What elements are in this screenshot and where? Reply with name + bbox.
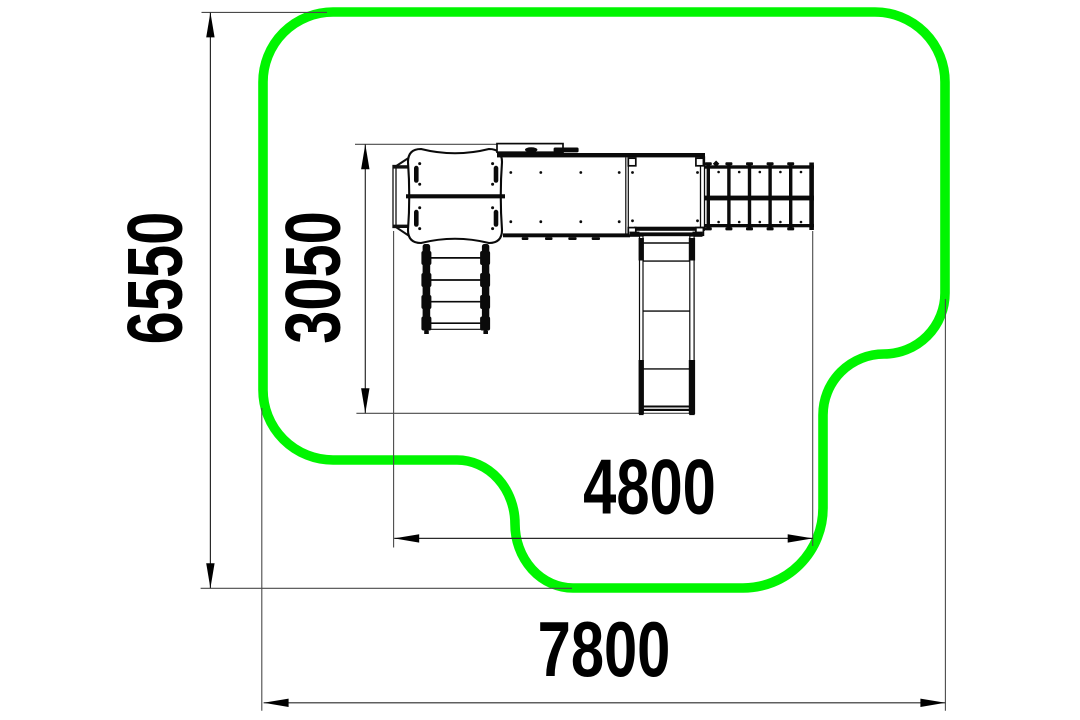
svg-text:3050: 3050 [269, 211, 357, 344]
svg-text:4800: 4800 [583, 443, 716, 531]
svg-text:7800: 7800 [538, 605, 671, 693]
svg-text:6550: 6550 [111, 212, 199, 345]
